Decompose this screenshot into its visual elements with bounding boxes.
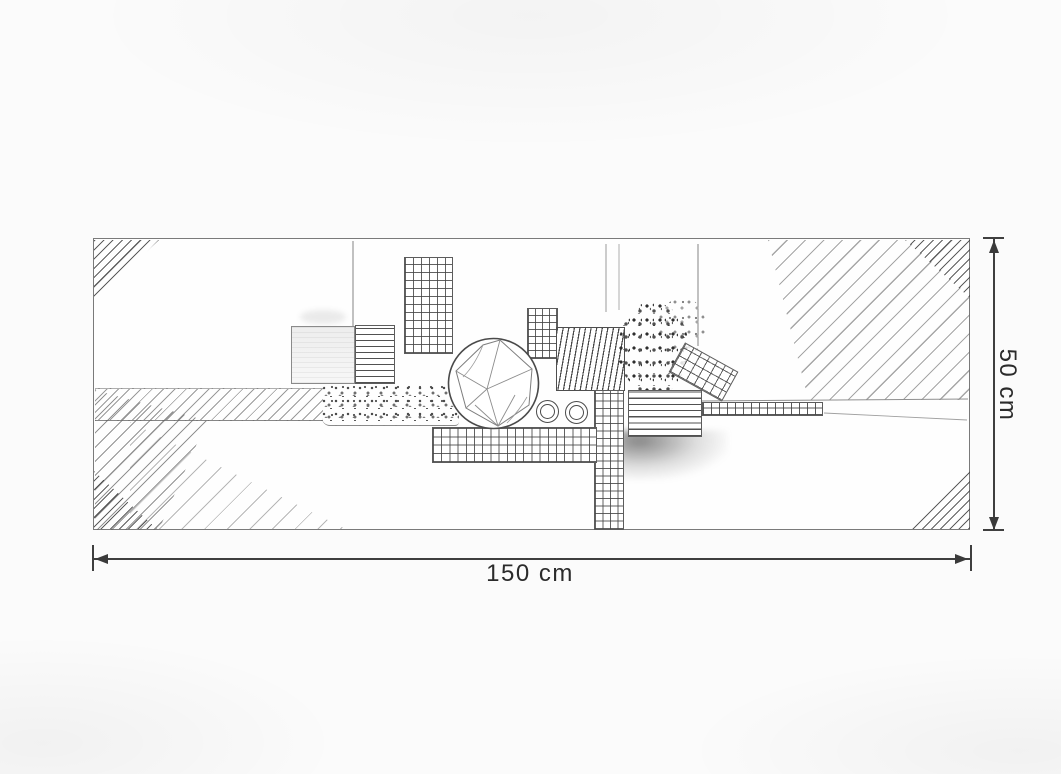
width-dimension-label: 150 cm xyxy=(430,560,630,588)
slat-panel-diagonal xyxy=(556,327,625,391)
gravel-bed xyxy=(322,385,459,426)
height-dimension-arrow-top xyxy=(989,240,999,253)
width-dimension-arrow-right xyxy=(955,554,968,564)
boulder-sphere xyxy=(445,335,542,432)
width-dimension-tick-right xyxy=(970,545,972,571)
shaded-box xyxy=(291,326,355,384)
grid-column xyxy=(594,390,624,530)
shadow-smudge xyxy=(620,430,728,480)
width-dimension-arrow-left xyxy=(95,554,108,564)
height-dimension-arrow-bottom xyxy=(989,517,999,530)
height-dimension-tick-top xyxy=(983,237,1004,239)
pencil-smudge xyxy=(300,310,346,324)
pot-ring-2-inner xyxy=(569,405,584,420)
width-dimension-tick-left xyxy=(92,545,94,571)
pot-ring-1-inner xyxy=(540,404,555,419)
pot-ring-2 xyxy=(565,401,588,424)
sketch-canvas: 150 cm 50 cm xyxy=(0,0,1061,774)
striped-deck xyxy=(628,390,702,437)
striped-box-left xyxy=(355,325,395,384)
grid-rail-strip xyxy=(702,402,823,416)
height-dimension-label: 50 cm xyxy=(997,315,1021,455)
pot-ring-1 xyxy=(536,400,559,423)
grid-platform xyxy=(432,427,597,463)
bush-plant xyxy=(618,302,688,395)
boulder-outline xyxy=(449,339,539,429)
